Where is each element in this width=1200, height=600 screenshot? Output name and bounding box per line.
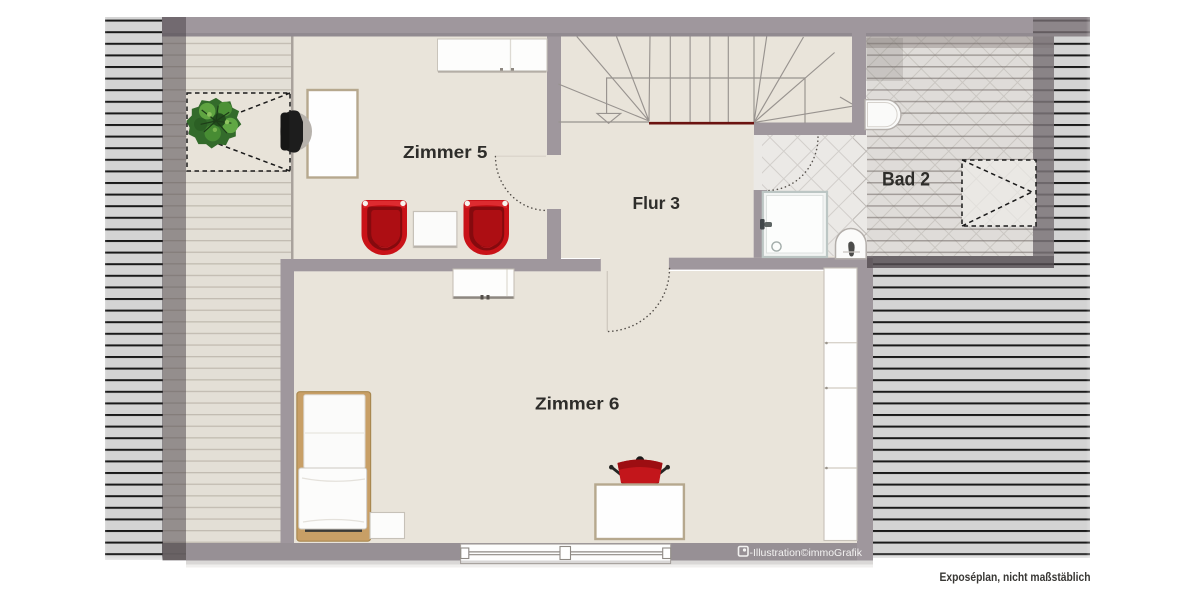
svg-text:Flur 3: Flur 3 (633, 193, 681, 213)
svg-text:Zimmer 5: Zimmer 5 (403, 142, 488, 162)
svg-text:Zimmer 6: Zimmer 6 (535, 394, 620, 414)
svg-text:-Illustration©immoGrafik: -Illustration©immoGrafik (750, 548, 863, 559)
svg-text:Bad 2: Bad 2 (882, 169, 930, 191)
svg-text:Exposéplan, nicht maßstäblich: Exposéplan, nicht maßstäblich (940, 570, 1091, 584)
